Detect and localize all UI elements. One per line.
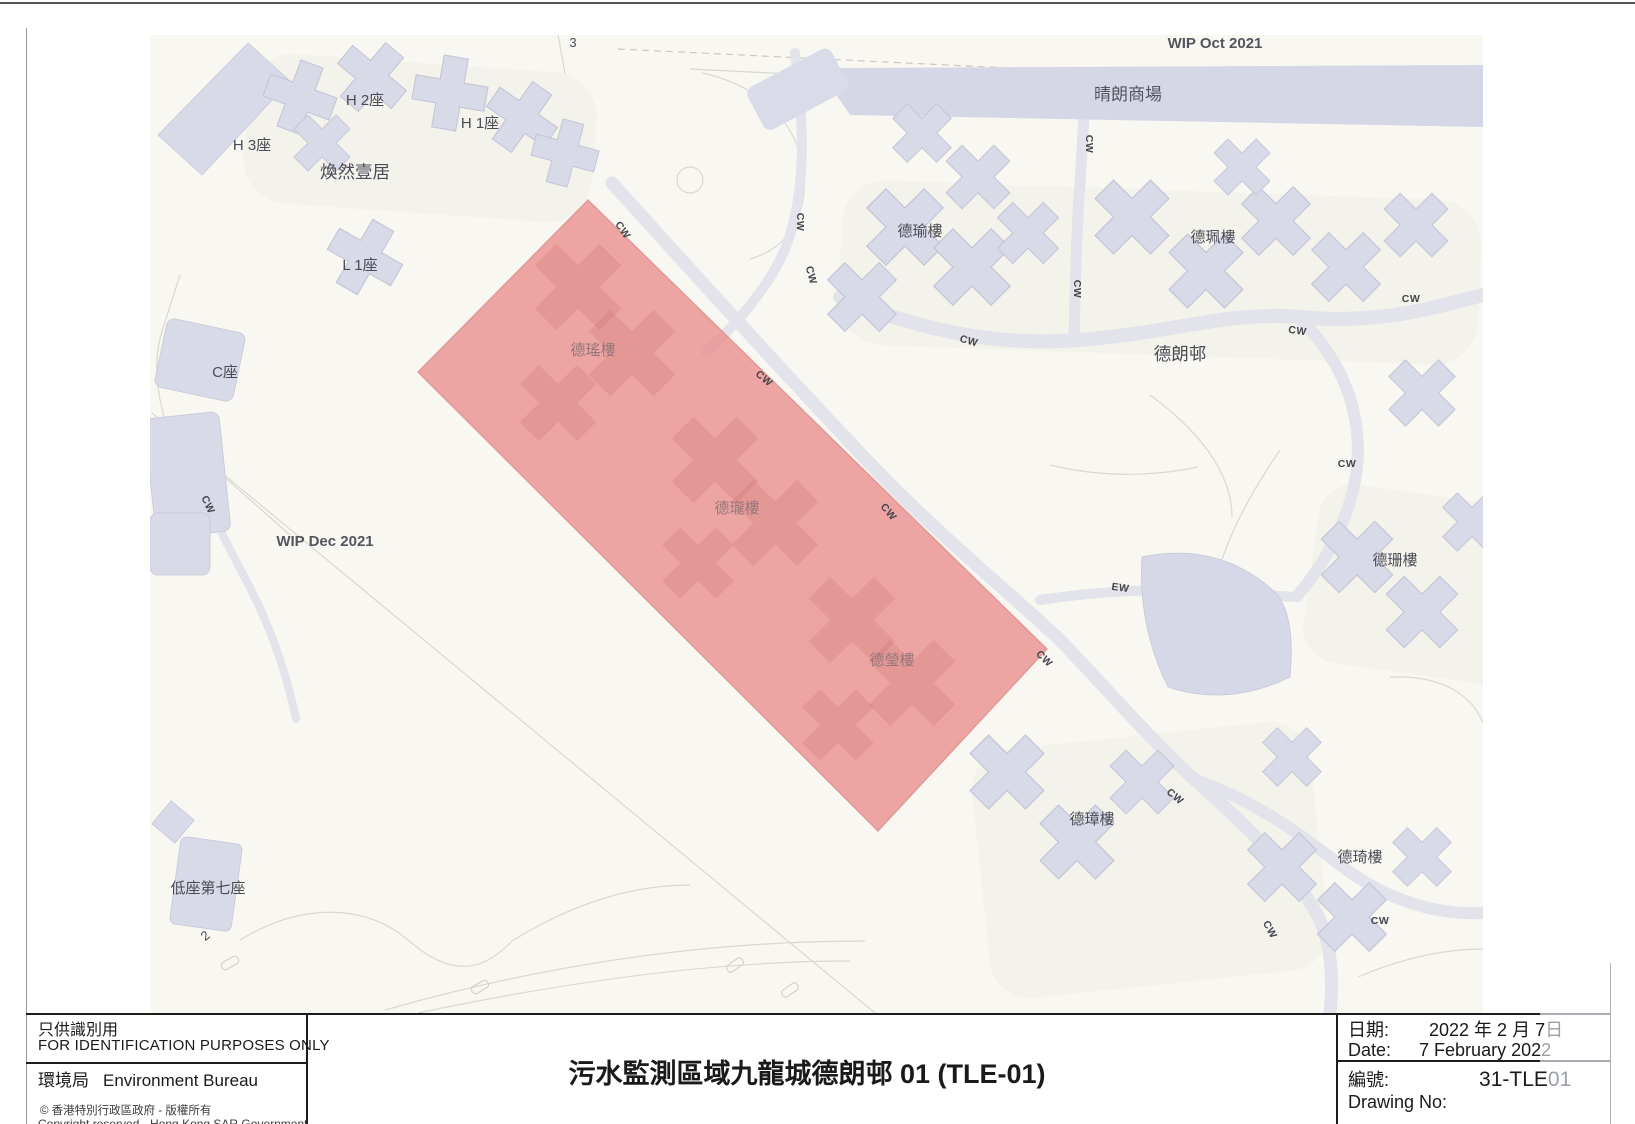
drawing-page: 3 WIP Oct 2021 H 2座 H 1座 H 3座 煥然壹居 L 1座 … <box>0 0 1635 1124</box>
road-label-cw: CW <box>1371 915 1390 927</box>
page-right-edge-line <box>1610 963 1611 1124</box>
page-top-border <box>0 2 1635 4</box>
date-value-en: 7 February 202 <box>1419 1040 1541 1060</box>
drawing-number-value-overflow: 01 <box>1548 1068 1571 1091</box>
road-label-cw: CW <box>1287 324 1307 338</box>
map-label-tak-shan: 德珊樓 <box>1372 551 1417 569</box>
map-label-number-3: 3 <box>569 35 576 50</box>
road-label-cw: CW <box>794 213 806 232</box>
date-row-zh: 日期:2022 年 2 月 7日 <box>1348 1016 1563 1042</box>
date-label-zh: 日期: <box>1348 1020 1389 1040</box>
bureau-name: 環境局Environment Bureau <box>38 1066 258 1091</box>
bureau-name-en: Environment Bureau <box>103 1071 258 1090</box>
map-label-tak-long-estate: 德朗邨 <box>1154 344 1207 364</box>
map-label-l1: L 1座 <box>342 257 377 274</box>
drawing-title: 污水監測區域九龍城德朗邨 01 (TLE-01) <box>307 1052 1307 1091</box>
road-label-cw: CW <box>1071 280 1083 299</box>
drawing-number-row: 編號:31-TLE01 <box>1348 1066 1571 1092</box>
map-label-tak-lung: 德瓏樓 <box>714 499 759 517</box>
road-label-cw: CW <box>1338 458 1357 470</box>
map-canvas: 3 WIP Oct 2021 H 2座 H 1座 H 3座 煥然壹居 L 1座 … <box>150 35 1483 1013</box>
titleblock-left-row-divider <box>26 1062 306 1064</box>
map-label-wip-dec: WIP Dec 2021 <box>276 533 373 550</box>
drawing-number-label-zh: 編號: <box>1348 1070 1389 1090</box>
map-label-h2: H 2座 <box>346 92 384 109</box>
drawing-number-label-en: Drawing No: <box>1348 1092 1447 1113</box>
map-label-h3: H 3座 <box>233 137 271 154</box>
map-label-c-block: C座 <box>212 364 238 381</box>
date-row-en: Date:7 February 2022 <box>1348 1040 1551 1061</box>
titleblock-top-line-faded <box>1540 1013 1610 1015</box>
titleblock-divider-right <box>1336 1013 1338 1124</box>
map-label-tak-yu: 德瑜樓 <box>897 222 942 240</box>
road-label-cw: CW <box>1083 135 1095 154</box>
map-label-tak-yiu: 德瑤樓 <box>570 341 615 359</box>
copyright-zh: © 香港特別行政區政府 - 版權所有 <box>40 1102 211 1118</box>
page-left-border <box>26 28 27 1124</box>
road-label-ew: EW <box>1111 581 1130 595</box>
bureau-name-zh: 環境局 <box>38 1071 89 1090</box>
identification-note-en: FOR IDENTIFICATION PURPOSES ONLY <box>38 1037 330 1054</box>
date-label-en: Date: <box>1348 1040 1391 1060</box>
road-label-cw: CW <box>1402 293 1421 305</box>
date-value-zh-overflow: 日 <box>1545 1020 1563 1040</box>
map-label-tak-kei: 德琦樓 <box>1337 848 1382 866</box>
map-label-tak-ying: 德瑩樓 <box>869 651 914 669</box>
copyright-en: Copyright reserved - Hong Kong SAR Gover… <box>38 1117 307 1124</box>
drawing-number-value: 31-TLE <box>1479 1068 1548 1091</box>
titleblock-top-line <box>26 1013 1540 1015</box>
map-label-h1: H 1座 <box>461 115 499 132</box>
map-label-low7: 低座第七座 <box>170 879 245 897</box>
map-label-hk-estate: 煥然壹居 <box>320 162 390 182</box>
map-label-wip-oct: WIP Oct 2021 <box>1168 35 1263 52</box>
map-label-mall: 晴朗商場 <box>1094 85 1162 104</box>
date-value-zh: 2022 年 2 月 7 <box>1429 1020 1545 1040</box>
map-label-tak-pui: 德珮樓 <box>1190 228 1235 246</box>
date-value-en-overflow: 2 <box>1541 1040 1551 1060</box>
map-label-tak-cheung: 德璋樓 <box>1069 810 1114 828</box>
